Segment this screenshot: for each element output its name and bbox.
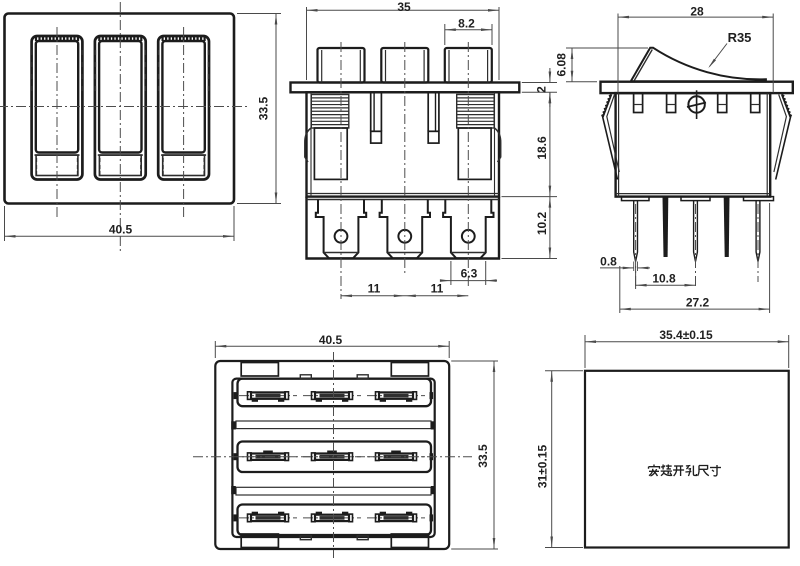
svg-text:31±0.15: 31±0.15 xyxy=(536,445,550,489)
svg-text:10.2: 10.2 xyxy=(535,211,549,235)
svg-text:33.5: 33.5 xyxy=(257,96,271,120)
svg-text:28: 28 xyxy=(690,4,704,18)
svg-text:8.2: 8.2 xyxy=(458,17,475,31)
svg-text:35.4±0.15: 35.4±0.15 xyxy=(659,328,713,342)
svg-text:27.2: 27.2 xyxy=(686,295,710,309)
svg-text:R35: R35 xyxy=(728,30,752,45)
svg-text:18.6: 18.6 xyxy=(535,136,549,160)
svg-text:35: 35 xyxy=(397,0,411,14)
svg-text:11: 11 xyxy=(368,281,381,295)
svg-text:6.3: 6.3 xyxy=(461,267,478,281)
svg-text:11: 11 xyxy=(431,281,444,295)
svg-text:2: 2 xyxy=(535,86,549,93)
svg-text:0.8: 0.8 xyxy=(600,255,617,269)
svg-text:40.5: 40.5 xyxy=(319,333,343,347)
svg-text:40.5: 40.5 xyxy=(109,223,133,237)
svg-text:6.08: 6.08 xyxy=(555,53,569,77)
svg-text:33.5: 33.5 xyxy=(476,444,490,468)
svg-text:10.8: 10.8 xyxy=(652,271,676,285)
